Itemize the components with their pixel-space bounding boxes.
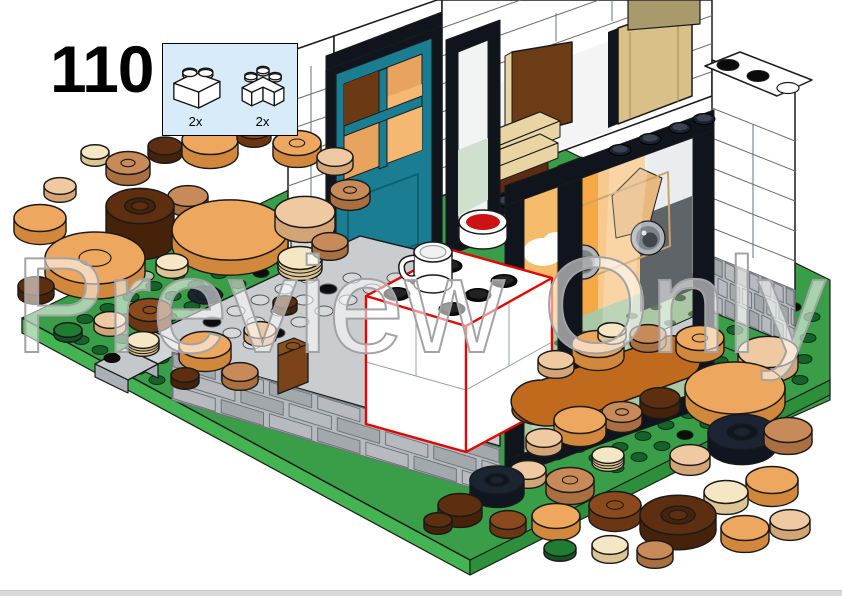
part-quantity: 2x: [189, 114, 203, 129]
parts-callout: 2x 2x: [162, 43, 298, 136]
instruction-page: 110 2x: [0, 0, 842, 596]
part-brick-1x2: 2x: [165, 58, 227, 129]
brick-corner-icon: [230, 58, 296, 112]
page-footer-bar: [0, 590, 842, 596]
part-brick-corner: 2x: [230, 58, 296, 129]
part-quantity: 2x: [256, 114, 270, 129]
step-number: 110: [50, 36, 153, 102]
brick-1x2-icon: [165, 58, 227, 112]
